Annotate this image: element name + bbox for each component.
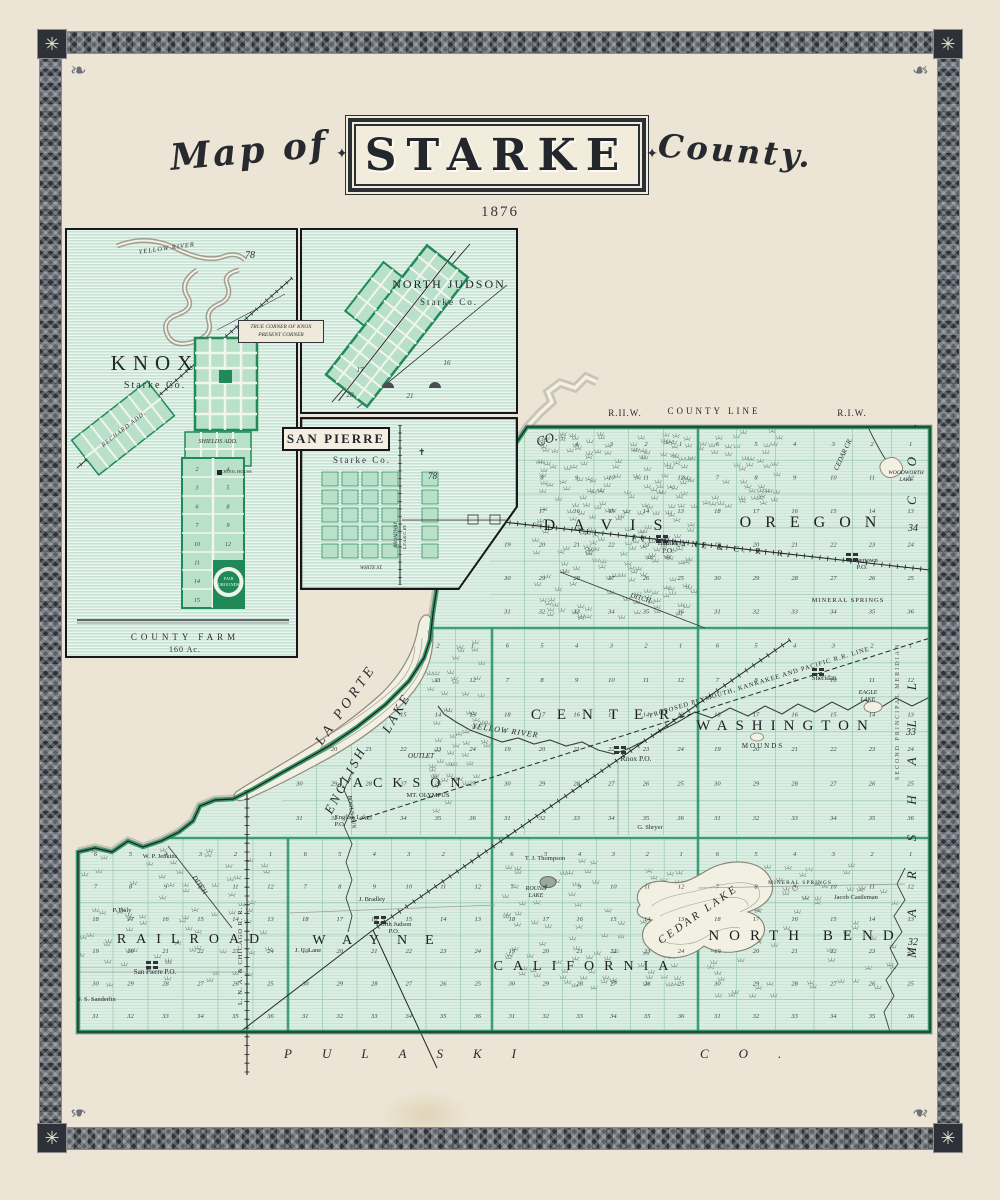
section-number: 28: [162, 981, 169, 988]
map-label: North Judson: [377, 921, 413, 928]
svg-text:5: 5: [227, 486, 230, 492]
map-label: WOODWORTH: [888, 470, 924, 476]
section-number: 33: [790, 1013, 798, 1020]
san-pierre-subtitle: Starke Co.: [333, 455, 391, 465]
map-label: Hamlet: [658, 539, 679, 547]
section-number: 10: [406, 884, 413, 891]
section-number: 27: [830, 575, 837, 582]
section-number: 13: [469, 711, 476, 718]
svg-text:15: 15: [194, 598, 200, 604]
section-number: 32: [126, 1013, 134, 1020]
section-number: 15: [610, 916, 617, 923]
section-number: 27: [608, 780, 615, 787]
section-number: 27: [608, 575, 615, 582]
section-number: 36: [906, 1013, 914, 1020]
map-label: J. S. Sanderlin: [78, 996, 116, 1003]
section-number: 15: [830, 916, 837, 923]
section-number: 17: [337, 916, 344, 923]
section-number: 31: [713, 608, 721, 615]
section-number: 20: [539, 541, 546, 548]
section-number: 33: [572, 815, 580, 822]
map-label: L. N. A. & CHICAGO R. R.: [237, 907, 244, 1005]
section-number: 27: [610, 981, 617, 988]
section-number: 25: [678, 981, 685, 988]
section-number: 3: [611, 851, 616, 858]
svg-text:Starke Co.: Starke Co.: [124, 380, 186, 391]
north-judson-title: NORTH JUDSON: [392, 277, 506, 291]
section-number: 32: [752, 815, 760, 822]
section-number: 20: [127, 948, 134, 955]
section-number: 35: [868, 608, 876, 615]
section-number: 28: [573, 780, 580, 787]
knox-inset-panel: RECHARD ADD. SHIELDS ADD. FAIR GROUNDS 2…: [65, 228, 298, 658]
svg-text:6: 6: [196, 504, 199, 510]
map-label: PULASKI: [283, 1046, 546, 1061]
section-number: 31: [508, 1013, 516, 1020]
section-number: 22: [406, 948, 413, 955]
section-number: 1: [679, 851, 682, 858]
map-label: Grovertown: [846, 557, 878, 564]
section-number: 20: [331, 746, 338, 753]
section-number: 10: [608, 677, 615, 684]
map-label: OUTLET: [408, 752, 435, 760]
svg-text:11: 11: [194, 561, 200, 567]
map-label: San Pierre P.O.: [134, 968, 177, 976]
section-number: 20: [543, 948, 550, 955]
map-label: English Lake: [335, 814, 370, 821]
section-number: 32: [336, 1013, 344, 1020]
section-number: 35: [642, 815, 650, 822]
section-number: 16: [576, 916, 583, 923]
section-number: 11: [435, 677, 441, 684]
section-number: 12: [678, 884, 685, 891]
section-number: 18: [509, 916, 516, 923]
svg-text:8: 8: [227, 504, 230, 510]
section-number: 32: [752, 608, 760, 615]
section-number: 23: [435, 746, 442, 753]
map-label: MT. OLYMPUS: [407, 792, 450, 799]
section-number: 18: [714, 916, 721, 923]
section-number: 11: [869, 474, 875, 481]
map-label: MINERAL SPRINGS: [768, 880, 832, 886]
map-label: Sheridan: [812, 674, 837, 682]
svg-text:78: 78: [428, 471, 438, 481]
section-number: 30: [713, 981, 721, 988]
section-number: 11: [643, 677, 649, 684]
section-number: 31: [301, 1013, 309, 1020]
section-number: 1: [269, 851, 272, 858]
section-number: 34: [607, 608, 615, 615]
section-number: 29: [753, 981, 760, 988]
section-number: 28: [791, 575, 798, 582]
svg-text:78: 78: [245, 250, 255, 261]
section-number: 22: [830, 948, 837, 955]
section-number: 11: [869, 884, 875, 891]
map-label: CO.: [904, 394, 919, 505]
map-label: CO.: [700, 1046, 811, 1061]
section-number: 36: [474, 1013, 482, 1020]
san-pierre-title-box: SAN PIERRE: [282, 427, 390, 451]
section-number: 27: [406, 981, 413, 988]
section-number: 35: [868, 1013, 876, 1020]
cartouche-left-ornament: ✦: [336, 146, 348, 163]
section-number: 31: [503, 815, 511, 822]
map-label: 32: [907, 937, 918, 948]
section-number: 30: [713, 780, 721, 787]
section-number: 13: [677, 508, 684, 515]
section-number: 11: [643, 474, 649, 481]
section-number: 3: [831, 441, 836, 448]
svg-text:20: 20: [347, 391, 355, 399]
svg-text:16: 16: [444, 359, 452, 367]
section-number: 34: [399, 815, 407, 822]
section-number: 22: [610, 948, 617, 955]
section-number: 20: [539, 746, 546, 753]
section-number: 1: [679, 441, 682, 448]
section-number: 21: [162, 948, 169, 955]
section-number: 33: [161, 1013, 169, 1020]
map-label: P. Daly: [113, 907, 133, 914]
map-label: SECOND PRINCIPAL MERIDIAN: [895, 643, 901, 780]
section-number: 12: [677, 474, 684, 481]
township-name-washington: WASHINGTON: [696, 718, 876, 734]
map-label: EAGLE: [858, 690, 878, 696]
section-number: 21: [791, 541, 798, 548]
township-name-davis: DAVIS: [544, 517, 681, 534]
map-label: T. J. Thompson: [525, 855, 566, 862]
section-number: 14: [435, 711, 442, 718]
section-number: 16: [162, 916, 169, 923]
section-number: 22: [400, 746, 407, 753]
section-number: 30: [503, 575, 511, 582]
section-number: 14: [644, 916, 651, 923]
section-number: 12: [475, 884, 482, 891]
map-label: P.O.: [662, 547, 674, 555]
section-number: 30: [301, 981, 309, 988]
section-number: 23: [440, 948, 447, 955]
section-number: 24: [907, 541, 914, 548]
section-number: 35: [439, 1013, 447, 1020]
map-label: Jacob Castleman: [834, 894, 879, 901]
map-label: ROUND: [525, 886, 547, 892]
section-number: 36: [677, 1013, 685, 1020]
section-number: 28: [371, 981, 378, 988]
section-number: 22: [608, 541, 615, 548]
svg-text:17: 17: [357, 366, 365, 374]
township-name-oregon: OREGON: [740, 514, 891, 531]
section-number: 18: [92, 916, 99, 923]
section-number: 17: [753, 916, 760, 923]
section-number: 29: [753, 575, 760, 582]
section-number: 13: [475, 916, 482, 923]
map-label: R.I.W.: [837, 408, 866, 418]
section-number: 30: [713, 575, 721, 582]
section-number: 23: [643, 746, 650, 753]
section-number: 20: [753, 948, 760, 955]
corner-note: TRUE CORNER OF KNOXPRESENT CORNER: [238, 320, 324, 343]
section-number: 29: [127, 981, 134, 988]
section-number: 10: [608, 474, 615, 481]
section-number: 32: [538, 608, 546, 615]
section-number: 3: [609, 642, 614, 649]
section-number: 27: [197, 981, 204, 988]
section-number: 33: [790, 815, 798, 822]
section-number: 18: [302, 916, 309, 923]
svg-text:2: 2: [196, 467, 199, 473]
section-number: 34: [829, 1013, 837, 1020]
knox-yellow-river: [117, 240, 245, 343]
svg-text:160 Ac.: 160 Ac.: [169, 645, 201, 654]
section-number: 31: [295, 815, 303, 822]
section-number: 14: [869, 916, 876, 923]
section-number: 31: [713, 1013, 721, 1020]
section-number: 35: [643, 1013, 651, 1020]
section-number: 26: [869, 575, 876, 582]
section-number: 35: [868, 815, 876, 822]
section-number: 32: [752, 1013, 760, 1020]
section-number: 34: [405, 1013, 413, 1020]
map-label: MARSHALL: [904, 653, 919, 959]
section-number: 11: [644, 884, 650, 891]
section-number: 13: [907, 508, 914, 515]
map-label: MOUNDS: [742, 742, 784, 750]
svg-text:✝: ✝: [418, 447, 426, 457]
section-number: 25: [267, 981, 274, 988]
section-number: 24: [267, 948, 274, 955]
section-number: 32: [542, 1013, 550, 1020]
section-number: 1: [909, 642, 912, 649]
section-number: 34: [196, 1013, 204, 1020]
section-number: 30: [295, 780, 303, 787]
section-number: 10: [610, 884, 617, 891]
section-number: 30: [503, 780, 511, 787]
section-number: 19: [714, 746, 721, 753]
map-label: G. Shryer: [637, 824, 663, 831]
section-number: 21: [791, 746, 798, 753]
map-label: LAKE: [898, 477, 913, 483]
svg-text:21: 21: [407, 392, 414, 400]
section-number: 13: [267, 916, 274, 923]
atlas-page: { "page": { "title_prefix": "Map of", "t…: [0, 0, 1000, 1200]
section-number: 16: [573, 508, 580, 515]
section-number: 26: [644, 981, 651, 988]
svg-text:GROUNDS: GROUNDS: [218, 582, 240, 587]
section-number: 33: [370, 1013, 378, 1020]
section-number: 29: [539, 575, 546, 582]
map-label: LAKE: [860, 697, 876, 703]
section-number: 30: [91, 981, 99, 988]
section-number: 36: [906, 608, 914, 615]
map-label: MINERAL SPRINGS: [812, 597, 885, 604]
map-label: 33: [905, 727, 916, 738]
section-number: 17: [127, 916, 134, 923]
section-number: 3: [831, 642, 836, 649]
section-number: 36: [266, 1013, 274, 1020]
svg-text:12: 12: [225, 542, 231, 548]
knox-rechard-add: RECHARD ADD.: [72, 381, 175, 475]
section-number: 20: [337, 948, 344, 955]
section-number: 11: [440, 884, 446, 891]
title-prefix: Map of: [168, 123, 329, 179]
section-number: 14: [440, 916, 447, 923]
svg-text:SHIELDS ADD.: SHIELDS ADD.: [199, 439, 238, 445]
section-number: 34: [829, 815, 837, 822]
section-number: 32: [538, 815, 546, 822]
section-number: 34: [829, 608, 837, 615]
section-number: 25: [907, 575, 914, 582]
township-name-north_bend: NORTH BEND: [708, 928, 903, 944]
broadway-label: BROADWAY: [394, 521, 399, 548]
svg-text:14: 14: [194, 578, 200, 585]
section-number: 12: [677, 677, 684, 684]
map-label: Knox P.O.: [620, 754, 651, 763]
section-number: 22: [830, 746, 837, 753]
section-number: 21: [791, 948, 798, 955]
section-number: 31: [713, 815, 721, 822]
section-number: 12: [267, 884, 274, 891]
section-number: 27: [830, 780, 837, 787]
section-number: 31: [91, 1013, 99, 1020]
map-label: J. Bradley: [359, 896, 386, 903]
section-number: 36: [676, 815, 684, 822]
section-number: 15: [197, 916, 204, 923]
section-number: 24: [475, 948, 482, 955]
map-label: P.O.: [389, 928, 400, 935]
white-st-label: WHITE ST.: [360, 566, 383, 571]
section-number: 3: [609, 441, 614, 448]
section-number: 11: [232, 884, 238, 891]
section-number: 26: [440, 981, 447, 988]
county-farm-label: COUNTY FARM: [131, 632, 239, 642]
section-number: 26: [643, 780, 650, 787]
title-cartouche: ✦ STARKE ✦: [348, 118, 646, 192]
section-number: 21: [576, 948, 583, 955]
township-name-wayne: WAYNE: [312, 933, 451, 948]
section-number: 19: [504, 746, 511, 753]
section-number: 28: [791, 981, 798, 988]
section-number: 11: [869, 677, 875, 684]
township-name-railroad: RAILROAD: [117, 932, 269, 947]
section-number: 35: [434, 815, 442, 822]
section-number: 22: [197, 948, 204, 955]
map-label: LAKE: [528, 893, 544, 899]
knox-title: KNOX: [111, 351, 200, 375]
section-number: 35: [231, 1013, 239, 1020]
svg-text:3: 3: [195, 486, 199, 492]
section-number: 36: [676, 608, 684, 615]
section-number: 28: [576, 981, 583, 988]
section-number: 1: [471, 642, 474, 649]
svg-text:L.N.A.& C. RY.: L.N.A.& C. RY.: [402, 525, 407, 550]
title-year: 1876: [0, 204, 1000, 221]
svg-text:Starke Co.: Starke Co.: [420, 297, 478, 307]
section-number: 21: [573, 541, 580, 548]
section-number: 34: [607, 815, 615, 822]
map-label: W. P. Jenkins: [143, 853, 178, 860]
section-number: 33: [572, 608, 580, 615]
section-number: 22: [608, 746, 615, 753]
section-number: 19: [92, 948, 99, 955]
section-number: 1: [679, 642, 682, 649]
township-name-california: CALIFORNIA: [494, 959, 679, 974]
section-number: 18: [714, 508, 721, 515]
section-number: 27: [830, 981, 837, 988]
section-number: 3: [831, 851, 836, 858]
section-number: 23: [644, 948, 651, 955]
section-number: 26: [869, 780, 876, 787]
map-label: COUNTY LINE: [668, 406, 761, 416]
title-main: STARKE: [365, 130, 630, 181]
section-number: 24: [678, 948, 685, 955]
knox-town-grid: [195, 338, 257, 430]
section-number: 23: [869, 948, 876, 955]
svg-text:SCHOOL HOUSE: SCHOOL HOUSE: [218, 469, 252, 474]
section-number: 15: [608, 508, 615, 515]
section-number: 28: [791, 780, 798, 787]
section-number: 16: [791, 916, 798, 923]
section-number: 25: [475, 981, 482, 988]
section-number: 17: [539, 508, 546, 515]
map-label: P.O.: [857, 564, 868, 571]
section-number: 28: [573, 575, 580, 582]
section-number: 1: [476, 851, 479, 858]
section-number: 25: [677, 575, 684, 582]
knox-south-strip: FAIR GROUNDS 236710111415458912 SCHOOL H…: [182, 458, 252, 608]
section-number: 22: [830, 541, 837, 548]
section-number: 23: [869, 541, 876, 548]
title-bar: Map of ✦ STARKE ✦ County. 1876: [0, 108, 1000, 218]
section-number: 25: [677, 780, 684, 787]
section-number: 33: [790, 608, 798, 615]
north-judson-inset-panel: NORTH JUDSON Starke Co. 17162021: [300, 228, 518, 414]
svg-text:9: 9: [227, 523, 230, 529]
section-number: 29: [753, 780, 760, 787]
section-number: 19: [509, 948, 516, 955]
section-number: 29: [539, 780, 546, 787]
section-number: 26: [643, 575, 650, 582]
section-number: 21: [371, 948, 378, 955]
section-number: 10: [830, 474, 837, 481]
section-number: 34: [609, 1013, 617, 1020]
san-pierre-title: SAN PIERRE: [287, 431, 385, 447]
section-number: 29: [337, 981, 344, 988]
svg-text:FAIR: FAIR: [224, 576, 234, 581]
section-number: 19: [714, 948, 721, 955]
section-number: 29: [543, 981, 550, 988]
map-label: J. C. Lane: [295, 947, 321, 954]
section-number: 35: [642, 608, 650, 615]
section-number: 18: [504, 711, 511, 718]
title-suffix: County.: [657, 127, 814, 176]
section-number: 24: [469, 746, 476, 753]
township-name-jackson: JACKSON: [337, 776, 470, 791]
section-number: 21: [573, 746, 580, 753]
map-label: P.O.: [335, 821, 346, 828]
section-number: 25: [907, 981, 914, 988]
section-number: 14: [643, 508, 650, 515]
section-number: 19: [504, 541, 511, 548]
svg-text:10: 10: [194, 542, 200, 548]
map-label: 34: [907, 523, 918, 534]
section-number: 17: [543, 916, 550, 923]
section-number: 33: [575, 1013, 583, 1020]
section-number: 26: [869, 981, 876, 988]
section-number: 30: [508, 981, 516, 988]
section-number: 23: [869, 746, 876, 753]
section-number: 31: [503, 608, 511, 615]
section-number: 36: [468, 815, 476, 822]
section-number: 12: [469, 677, 476, 684]
